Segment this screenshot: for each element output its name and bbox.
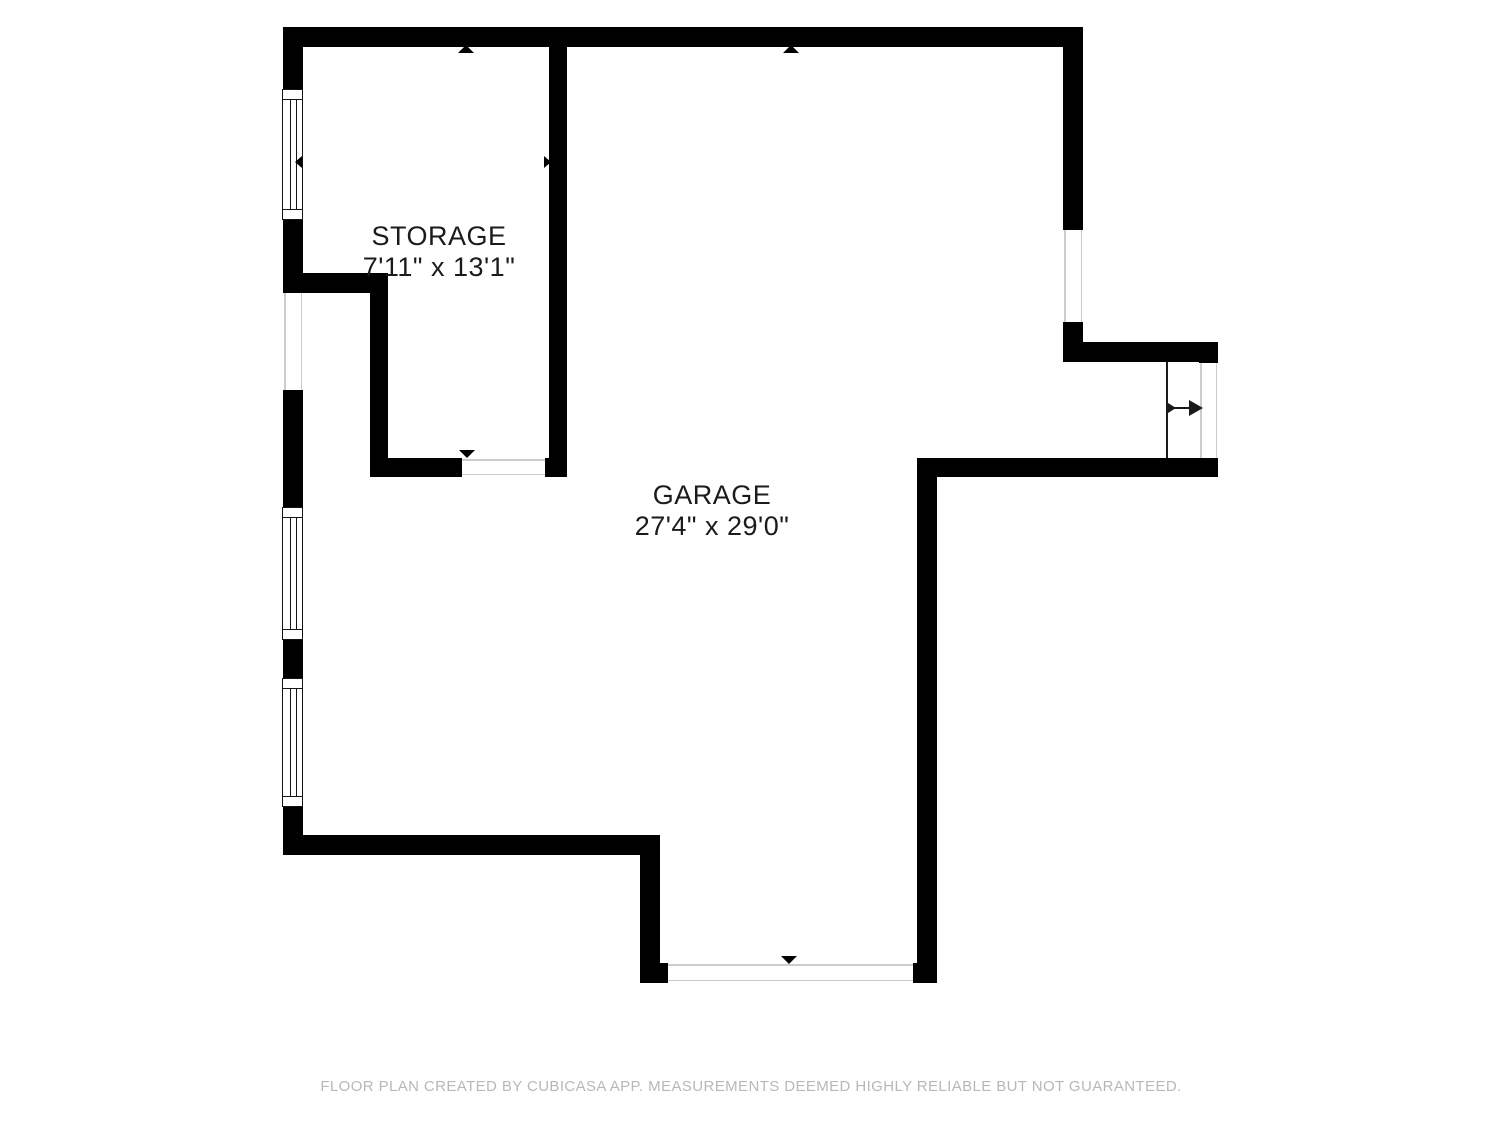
- measure-arrow-up-icon: [783, 45, 799, 53]
- room-label-garage: GARAGE 27'4" x 29'0": [635, 480, 790, 542]
- storage-door-opening: [462, 458, 545, 477]
- wall-step-vertical: [640, 835, 660, 983]
- measure-arrow-right-icon: [544, 156, 551, 168]
- wall-entry-top-stub: [1199, 342, 1218, 363]
- wall-left-segment-1: [283, 47, 303, 89]
- window-pane-lines: [290, 518, 297, 629]
- wall-lower-horizontal: [917, 458, 1218, 477]
- room-dimensions: 27'4" x 29'0": [635, 511, 790, 542]
- measure-arrow-left-icon: [295, 401, 302, 413]
- room-label-storage: STORAGE 7'11" x 13'1": [363, 221, 516, 283]
- room-dimensions: 7'11" x 13'1": [363, 252, 516, 283]
- measure-arrow-left-icon: [295, 156, 302, 168]
- window-pane-lines: [290, 100, 297, 209]
- wall-left-segment-4: [283, 640, 303, 678]
- room-name: STORAGE: [363, 221, 516, 252]
- wall-storage-interior-vertical: [370, 273, 388, 477]
- wall-right-lower-vertical: [917, 458, 937, 983]
- wall-storage-right: [549, 47, 567, 477]
- wall-top: [283, 27, 1083, 47]
- wall-right-upper: [1063, 27, 1083, 230]
- right-wall-opening: [1063, 230, 1083, 322]
- measure-arrow-up-icon: [458, 45, 474, 53]
- room-name: GARAGE: [635, 480, 790, 511]
- window-pane-lines: [290, 689, 297, 796]
- garage-door-opening: [668, 963, 913, 983]
- wall-bottom-left: [283, 835, 658, 855]
- footer-disclaimer: FLOOR PLAN CREATED BY CUBICASA APP. MEAS…: [320, 1078, 1181, 1095]
- window: [282, 89, 303, 220]
- wall-upper-horizontal: [1063, 342, 1218, 362]
- wall-storage-bottom: [370, 458, 462, 477]
- left-wall-opening: [283, 293, 303, 390]
- measure-arrow-down-icon: [781, 956, 797, 964]
- window: [282, 507, 303, 640]
- door-direction-arrow-icon: [1189, 400, 1203, 416]
- window: [282, 678, 303, 807]
- wall-right-stub: [1063, 322, 1083, 342]
- wall-garage-door-left-stub: [640, 963, 668, 983]
- door-arrow-base-tick-icon: [1168, 403, 1176, 413]
- measure-arrow-down-icon: [459, 450, 475, 458]
- floor-plan: STORAGE 7'11" x 13'1" GARAGE 27'4" x 29'…: [0, 0, 1500, 1125]
